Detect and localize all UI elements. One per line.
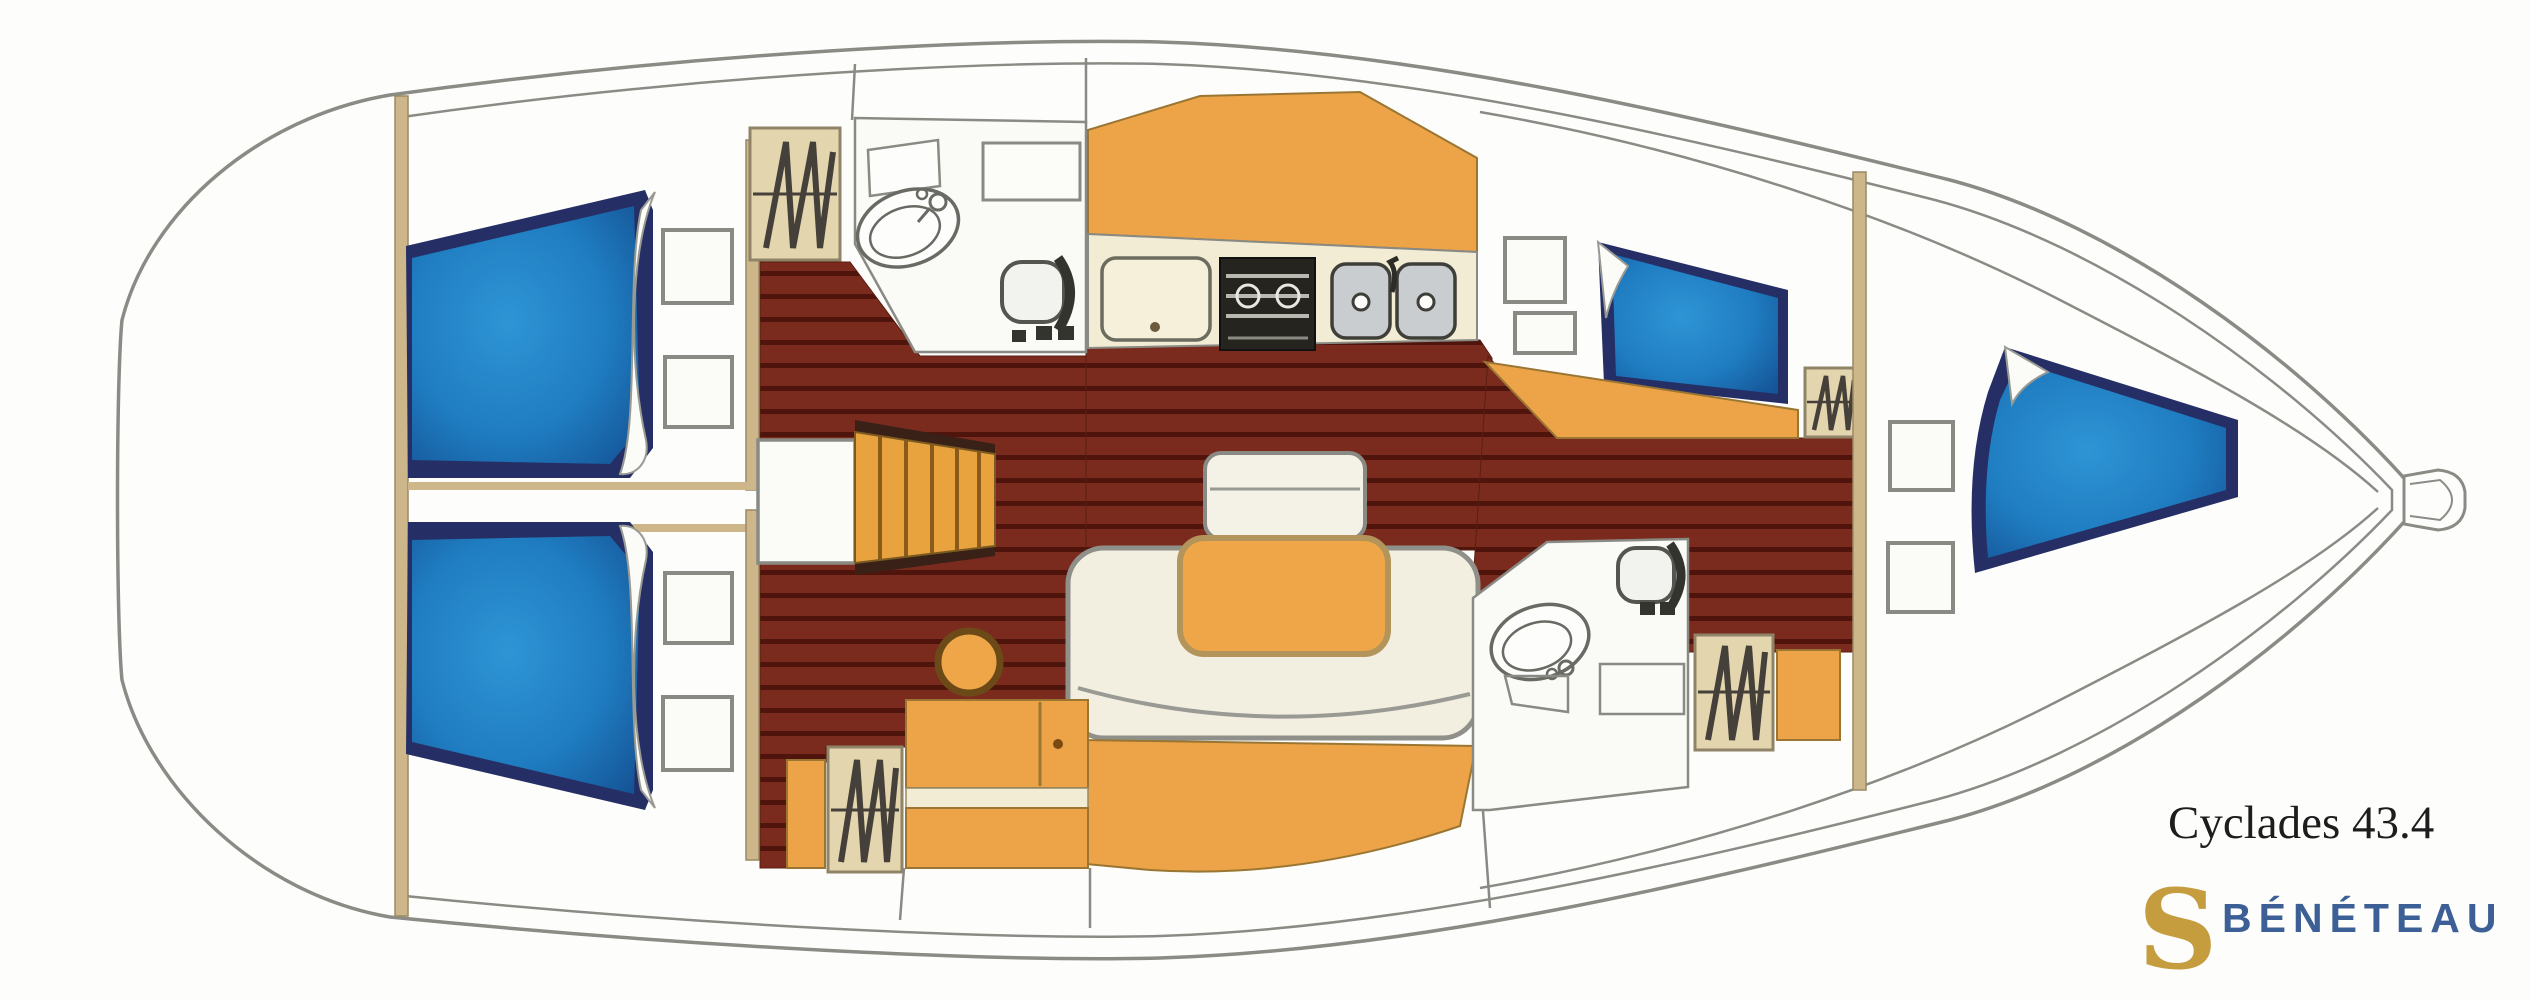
forward-bulkhead — [1853, 172, 1866, 790]
hanging-locker-aft-starboard — [828, 747, 902, 872]
nav-side-cabinet — [787, 760, 825, 868]
forward-head-side-cabinet — [1777, 650, 1840, 740]
floorplan-drawing: Cyclades 43.4 S BÉNÉTEAU — [0, 0, 2531, 1000]
aft-stbd-shelf-1 — [665, 573, 732, 643]
nav-counter-gap — [906, 788, 1088, 808]
transom-bulkhead — [395, 96, 408, 916]
stove-oven — [1220, 258, 1315, 350]
aft-stbd-shelf-2 — [663, 697, 732, 770]
saloon-table — [1180, 538, 1388, 654]
model-name: Cyclades 43.4 — [2168, 797, 2434, 849]
brand-name: BÉNÉTEAU — [2222, 895, 2504, 941]
companionway-steps — [855, 432, 995, 563]
aft-port-shelf-1 — [663, 230, 732, 303]
nav-stool — [938, 631, 1000, 693]
vberth-step-2 — [1888, 543, 1953, 612]
drawer-handle — [1053, 739, 1063, 749]
companionway — [758, 420, 995, 575]
forward-seat-2 — [1515, 313, 1575, 353]
forward-seat-1 — [1505, 238, 1565, 302]
bow-fitting — [2404, 470, 2465, 530]
branding: Cyclades 43.4 S BÉNÉTEAU — [2138, 797, 2504, 994]
icebox-handle — [1150, 322, 1160, 332]
shower-panel — [868, 140, 940, 196]
engine-box — [758, 440, 855, 563]
aft-head-cabinet — [983, 143, 1080, 200]
boat-floorplan-canvas: Cyclades 43.4 S BÉNÉTEAU — [0, 0, 2531, 1000]
vberth-step-1 — [1890, 422, 1953, 490]
beneteau-logo-icon: S — [2138, 865, 2217, 994]
hanging-locker-aft-port — [750, 128, 840, 260]
hanging-locker-forward-cabin — [1805, 368, 1860, 437]
hanging-locker-forward-head — [1695, 635, 1773, 750]
galley — [1088, 92, 1477, 350]
nav-lower-cabinet — [906, 808, 1088, 868]
saloon-side-bench — [1205, 453, 1365, 539]
aft-port-shelf-2 — [665, 357, 732, 427]
